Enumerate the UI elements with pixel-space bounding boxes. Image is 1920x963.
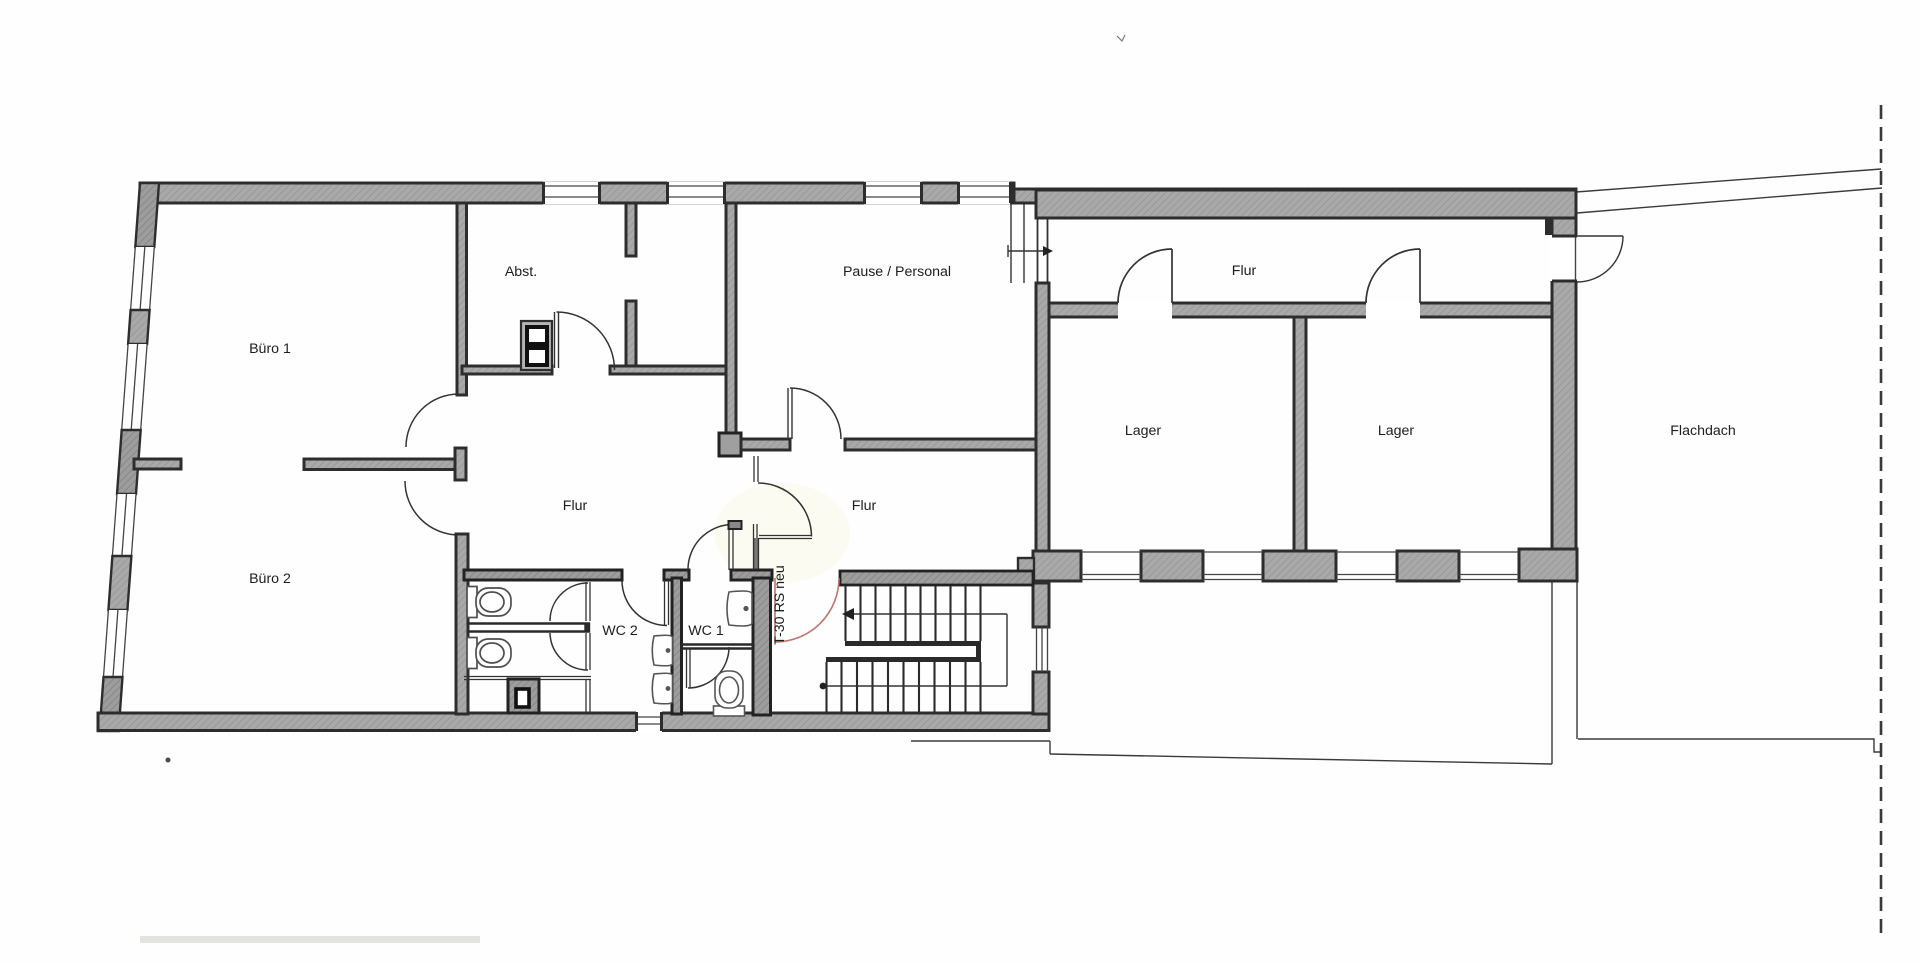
svg-text:Lager: Lager [1378, 423, 1415, 439]
svg-text:WC 2: WC 2 [602, 623, 638, 639]
svg-text:WC 1: WC 1 [688, 623, 724, 639]
svg-text:Büro 2: Büro 2 [249, 571, 291, 587]
svg-text:Flur: Flur [563, 498, 588, 514]
svg-text:Flur: Flur [852, 498, 877, 514]
svg-text:Büro 1: Büro 1 [249, 341, 291, 357]
svg-text:Flachdach: Flachdach [1670, 423, 1735, 439]
svg-text:Flur: Flur [1232, 263, 1257, 279]
svg-text:Lager: Lager [1125, 423, 1162, 439]
svg-text:T-30 RS neu: T-30 RS neu [772, 565, 788, 645]
svg-text:Pause / Personal: Pause / Personal [843, 264, 951, 280]
svg-text:Abst.: Abst. [505, 264, 537, 280]
